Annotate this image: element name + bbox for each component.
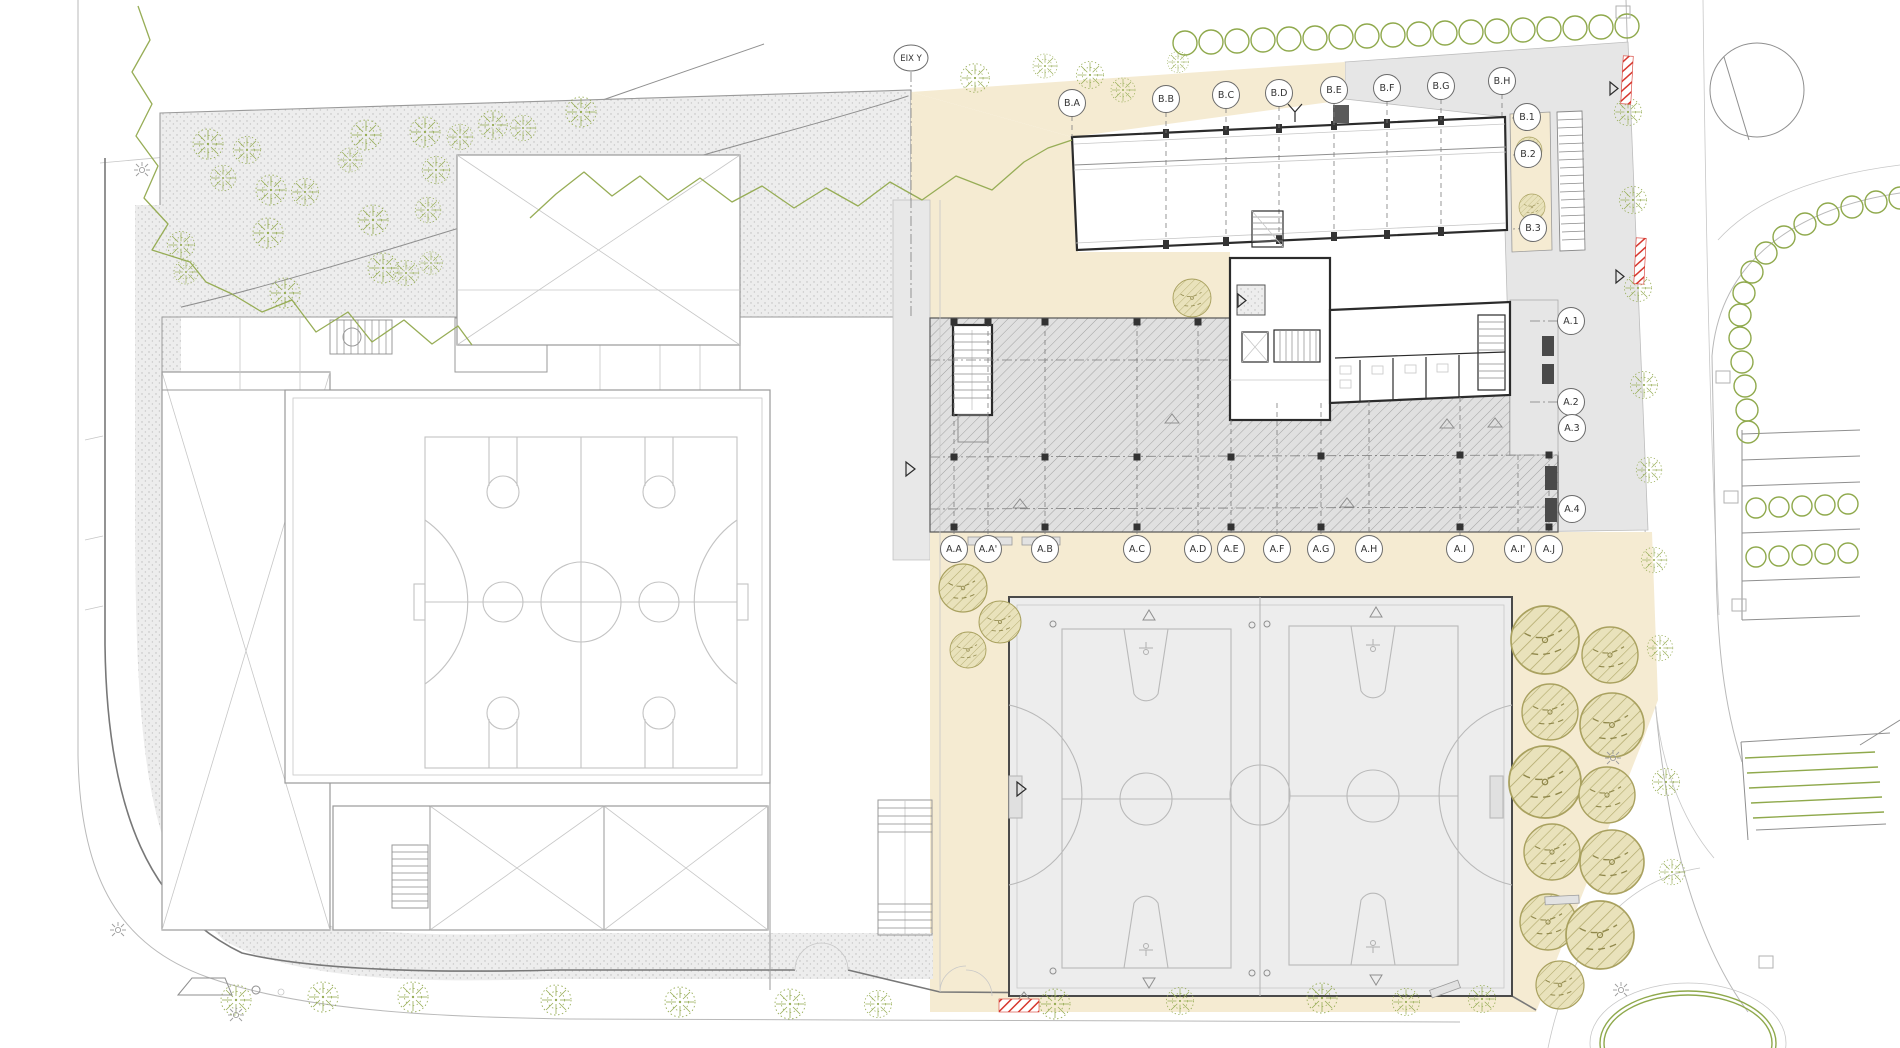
crossing-marker xyxy=(1634,238,1646,284)
grid-bubble-ae: A.E xyxy=(1218,536,1245,563)
crossing-marker xyxy=(999,999,1039,1012)
svg-text:A.J: A.J xyxy=(1543,544,1555,555)
svg-text:A.3: A.3 xyxy=(1564,423,1579,434)
core-block xyxy=(1230,258,1330,420)
grid-bubble-b3: B.3 xyxy=(1520,215,1547,242)
grid-bubble-ah: A.H xyxy=(1356,536,1383,563)
grid-bubble-bb: B.B xyxy=(1153,86,1180,113)
svg-text:A.A: A.A xyxy=(946,544,962,555)
corridor-stair xyxy=(878,800,932,935)
svg-text:B.E: B.E xyxy=(1326,85,1342,96)
svg-text:B.2: B.2 xyxy=(1520,149,1536,160)
grid-bubble-ai2: A.I' xyxy=(1505,536,1532,563)
grid-bubble-bf: B.F xyxy=(1374,75,1401,102)
grid-bubble-af: A.F xyxy=(1264,536,1291,563)
grid-bubble-ad: A.D xyxy=(1185,536,1212,563)
parking-lower xyxy=(1741,720,1900,840)
parking-upper xyxy=(1742,430,1860,620)
svg-text:A.G: A.G xyxy=(1313,544,1330,555)
grid-bubble-bc: B.C xyxy=(1213,82,1240,109)
svg-text:B.G: B.G xyxy=(1433,81,1450,92)
grid-bubble-a4: A.4 xyxy=(1559,496,1586,523)
axis-bubble-eix-y: EIX Y xyxy=(894,45,928,71)
grid-bubble-a3: A.3 xyxy=(1559,415,1586,442)
grid-bubble-ab: A.B xyxy=(1032,536,1059,563)
site-plan-canvas: EIX Y B.A B.B B.C B.D B.E B.F B.G B.H B.… xyxy=(0,0,1900,1048)
roof-vent xyxy=(1333,105,1349,123)
svg-text:A.H: A.H xyxy=(1361,544,1378,555)
corner-hedge-chain xyxy=(1729,187,1900,443)
svg-text:A.E: A.E xyxy=(1223,544,1238,555)
grid-bubble-b1: B.1 xyxy=(1514,104,1541,131)
grid-bubble-bd: B.D xyxy=(1266,80,1293,107)
svg-text:A.B: A.B xyxy=(1037,544,1053,555)
svg-text:A.1: A.1 xyxy=(1563,316,1578,327)
bus-shelter xyxy=(178,978,232,995)
grid-bubble-aj: A.J xyxy=(1536,536,1563,563)
svg-text:B.H: B.H xyxy=(1494,76,1511,87)
grid-bubble-bh: B.H xyxy=(1489,68,1516,95)
architectural-site-plan: EIX Y B.A B.B B.C B.D B.E B.F B.G B.H B.… xyxy=(0,0,1900,1048)
svg-text:A.F: A.F xyxy=(1270,544,1285,555)
crossing-marker xyxy=(1621,56,1633,104)
grid-bubble-ba: B.A xyxy=(1059,90,1086,117)
svg-text:A.I: A.I xyxy=(1454,544,1466,555)
svg-text:A.4: A.4 xyxy=(1564,504,1579,515)
grid-bubble-aa2: A.A' xyxy=(975,536,1002,563)
svg-text:A.D: A.D xyxy=(1190,544,1207,555)
grid-bubble-ag: A.G xyxy=(1308,536,1335,563)
svg-text:A.2: A.2 xyxy=(1563,397,1578,408)
svg-text:B.1: B.1 xyxy=(1519,112,1535,123)
grid-bubble-ac: A.C xyxy=(1124,536,1151,563)
svg-text:EIX Y: EIX Y xyxy=(900,54,922,64)
svg-text:B.B: B.B xyxy=(1158,94,1174,105)
svg-text:B.3: B.3 xyxy=(1525,223,1541,234)
grid-bubble-a2: A.2 xyxy=(1558,389,1585,416)
svg-text:B.A: B.A xyxy=(1064,98,1081,109)
gray-walk xyxy=(893,200,930,560)
grid-bubble-bg: B.G xyxy=(1428,73,1455,100)
grid-bubble-ai: A.I xyxy=(1447,536,1474,563)
svg-text:B.C: B.C xyxy=(1218,90,1235,101)
grid-bubble-b2: B.2 xyxy=(1515,141,1542,168)
svg-text:B.F: B.F xyxy=(1379,83,1394,94)
entry-stair xyxy=(330,320,392,354)
svg-text:A.I': A.I' xyxy=(1511,544,1526,555)
east-ramp xyxy=(1557,111,1585,251)
svg-text:A.C: A.C xyxy=(1129,544,1145,555)
svg-text:A.A': A.A' xyxy=(979,544,997,555)
grid-bubble-a1: A.1 xyxy=(1558,308,1585,335)
grid-bubble-be: B.E xyxy=(1321,77,1348,104)
svg-text:B.D: B.D xyxy=(1271,88,1288,99)
grid-bubble-aa: A.A xyxy=(941,536,968,563)
outdoor-sports-area xyxy=(1009,597,1512,996)
service-wing xyxy=(1330,302,1510,403)
